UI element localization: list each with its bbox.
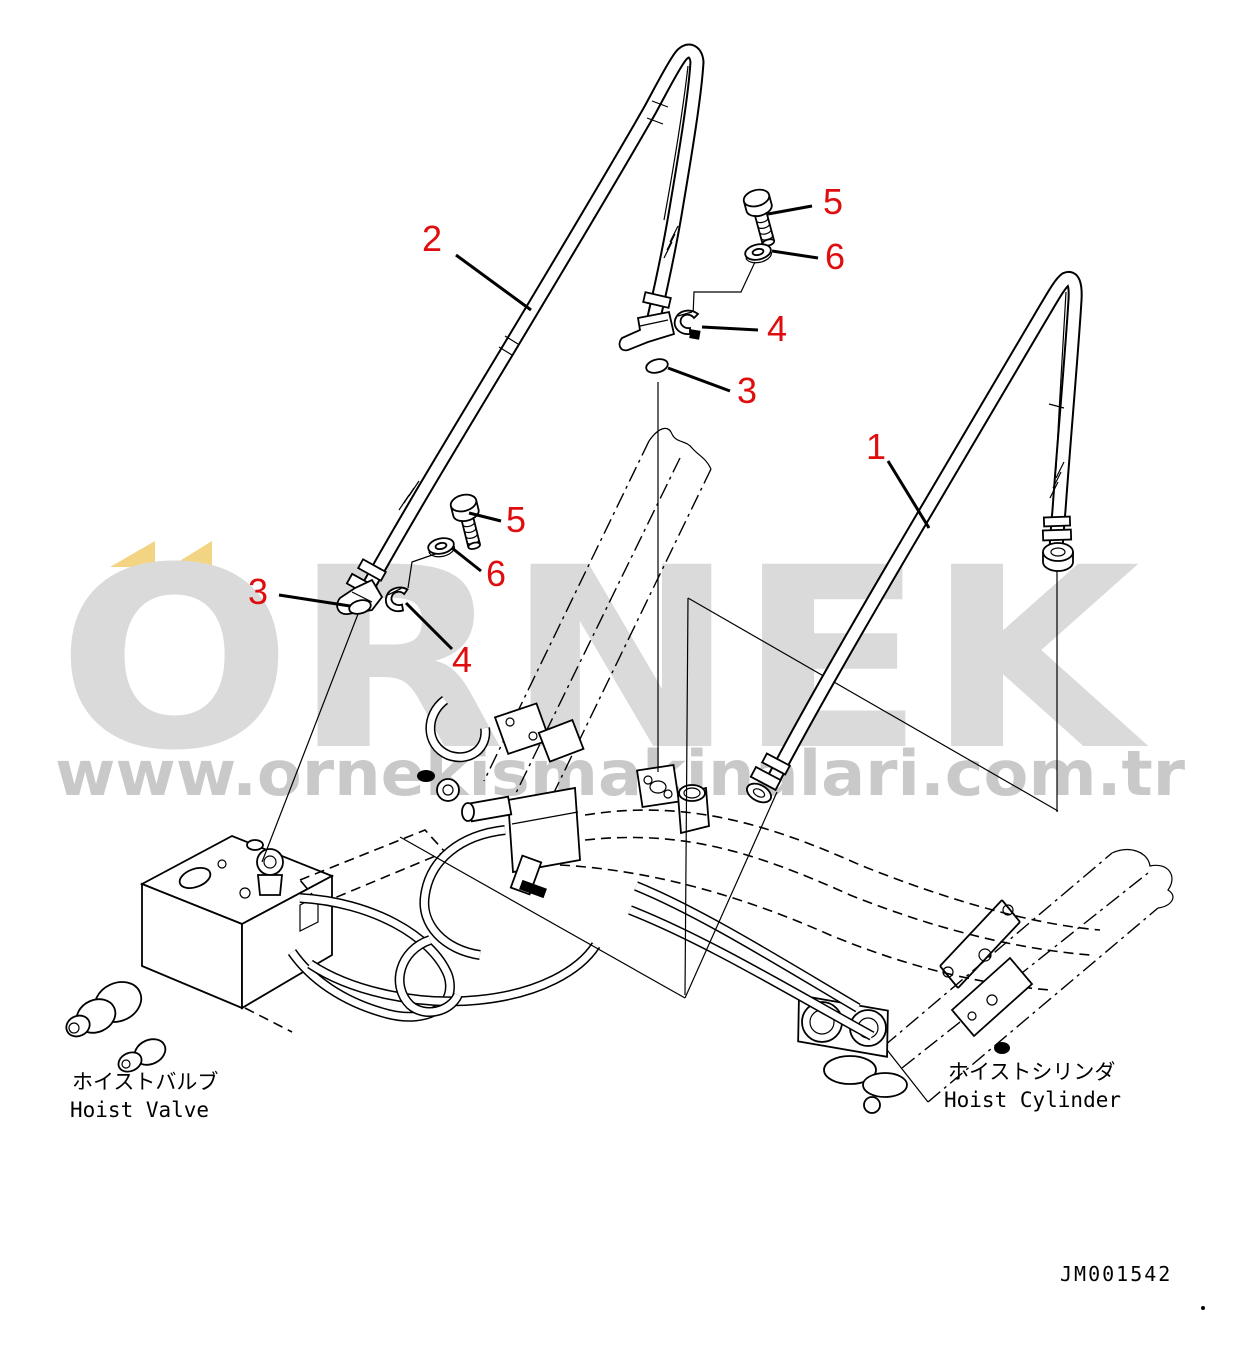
callout-5-label: 5	[823, 181, 843, 222]
callout-2-label: 2	[422, 218, 442, 259]
hoist-valve-label-jp: ホイストバルブ	[72, 1070, 218, 1094]
callout-1-label: 1	[866, 426, 886, 467]
bolt-head-dark	[417, 770, 435, 782]
hose-2-end-fitting-top	[620, 292, 674, 350]
bolt-5-top	[742, 187, 782, 249]
callout-3-label: 3	[737, 370, 757, 411]
callout-4-label: 4	[452, 639, 472, 680]
watermark: ORNEK www.ornekismakinalari.com.tr	[55, 514, 1185, 810]
plug-3-top	[645, 357, 669, 375]
hoist-valve-label-en: Hoist Valve	[70, 1098, 209, 1122]
hoist-piping-diagram: ORNEK www.ornekismakinalari.com.tr	[0, 0, 1243, 1352]
part-labels: ホイストバルブ Hoist Valve ホイストシリンダ Hoist Cylin…	[70, 1060, 1205, 1310]
clamp-4-top	[675, 311, 701, 340]
washer-6-top	[744, 242, 773, 265]
hoist-cylinder-label-jp: ホイストシリンダ	[948, 1060, 1115, 1084]
callout-6-label: 6	[825, 236, 845, 277]
watermark-url-text: www.ornekismakinalari.com.tr	[55, 737, 1185, 810]
hoist-cylinder-label-en: Hoist Cylinder	[944, 1088, 1121, 1112]
callout-6-label: 6	[486, 553, 506, 594]
callout-5-label: 5	[506, 499, 526, 540]
callout-4-label: 4	[767, 308, 787, 349]
drawing-code: JM001542	[1060, 1262, 1172, 1286]
callout-3-label: 3	[248, 571, 268, 612]
parts-diagram-page: ORNEK www.ornekismakinalari.com.tr	[0, 0, 1243, 1352]
stray-dot	[1201, 1306, 1205, 1310]
